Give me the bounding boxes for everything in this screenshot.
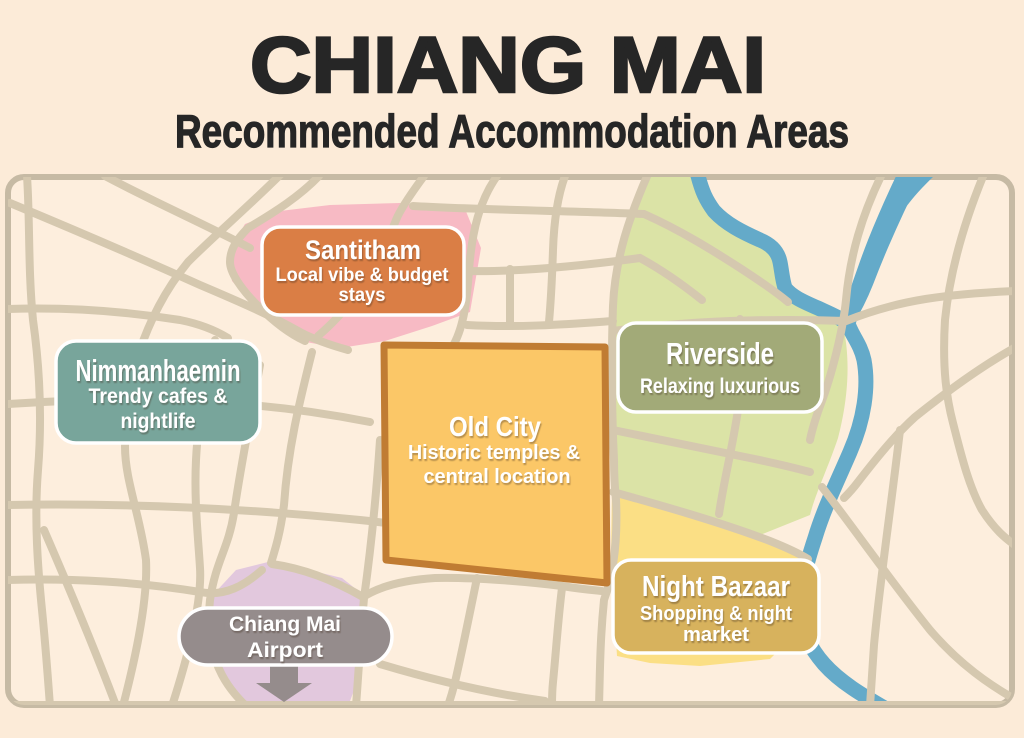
svg-text:Santitham: Santitham: [305, 235, 421, 265]
svg-text:market: market: [683, 624, 749, 646]
svg-text:Local vibe & budget: Local vibe & budget: [276, 265, 450, 286]
svg-text:Chiang Mai: Chiang Mai: [229, 613, 341, 636]
svg-text:CHIANG MAI: CHIANG MAI: [250, 20, 766, 109]
svg-text:stays: stays: [339, 285, 386, 306]
svg-text:Historic temples &: Historic temples &: [408, 442, 580, 464]
svg-text:Old City: Old City: [449, 411, 541, 442]
svg-text:Nimmanhaemin: Nimmanhaemin: [76, 353, 241, 388]
svg-text:nightlife: nightlife: [121, 410, 196, 433]
svg-text:Recommended Accommodation Area: Recommended Accommodation Areas: [175, 105, 849, 157]
svg-text:Shopping & night: Shopping & night: [640, 603, 792, 625]
svg-text:Relaxing luxurious: Relaxing luxurious: [640, 375, 800, 398]
svg-text:Airport: Airport: [247, 639, 323, 662]
svg-text:central location: central location: [424, 466, 571, 488]
svg-text:Night Bazaar: Night Bazaar: [642, 571, 790, 603]
svg-text:Riverside: Riverside: [666, 336, 774, 371]
svg-text:Trendy cafes &: Trendy cafes &: [89, 385, 228, 408]
